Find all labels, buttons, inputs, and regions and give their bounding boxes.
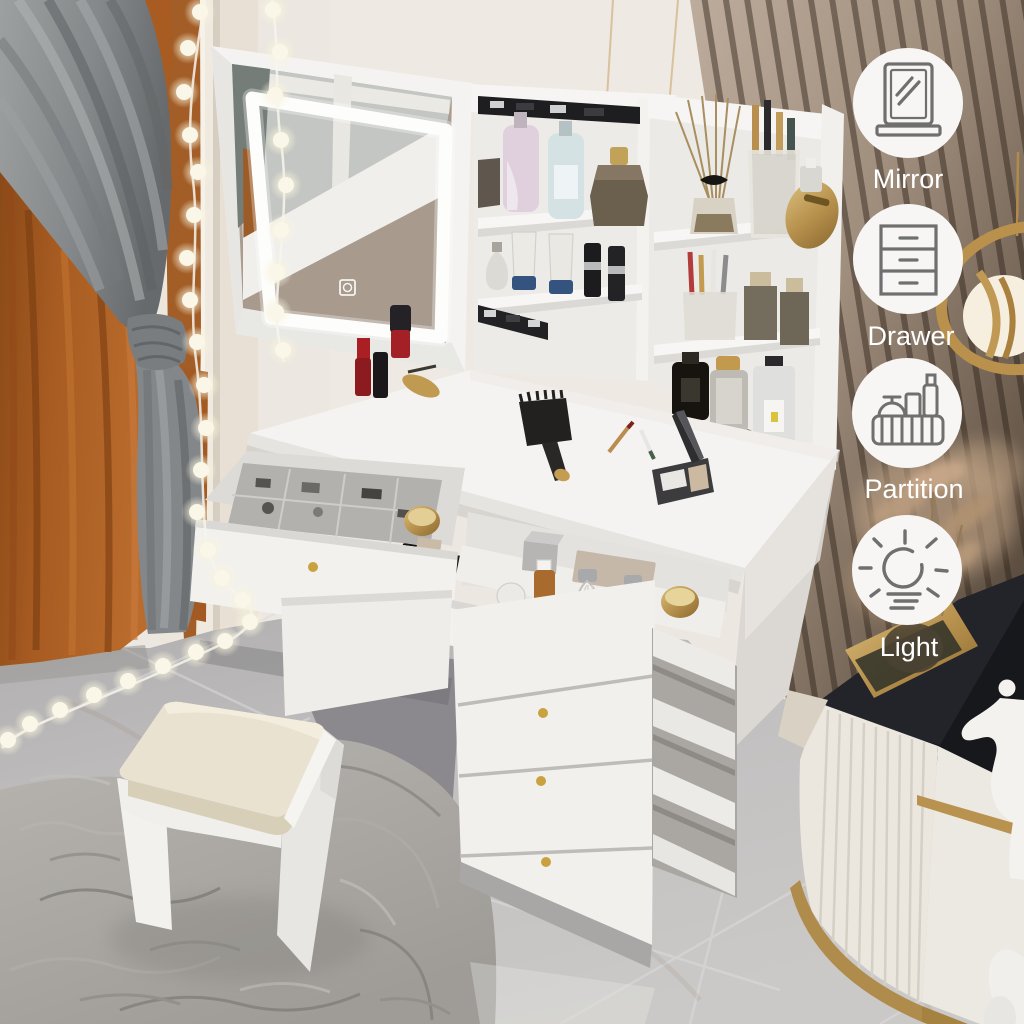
svg-text:Light: Light	[880, 632, 939, 662]
svg-text:Drawer: Drawer	[867, 321, 954, 351]
svg-text:Mirror: Mirror	[873, 164, 943, 194]
svg-text:Partition: Partition	[864, 474, 963, 504]
